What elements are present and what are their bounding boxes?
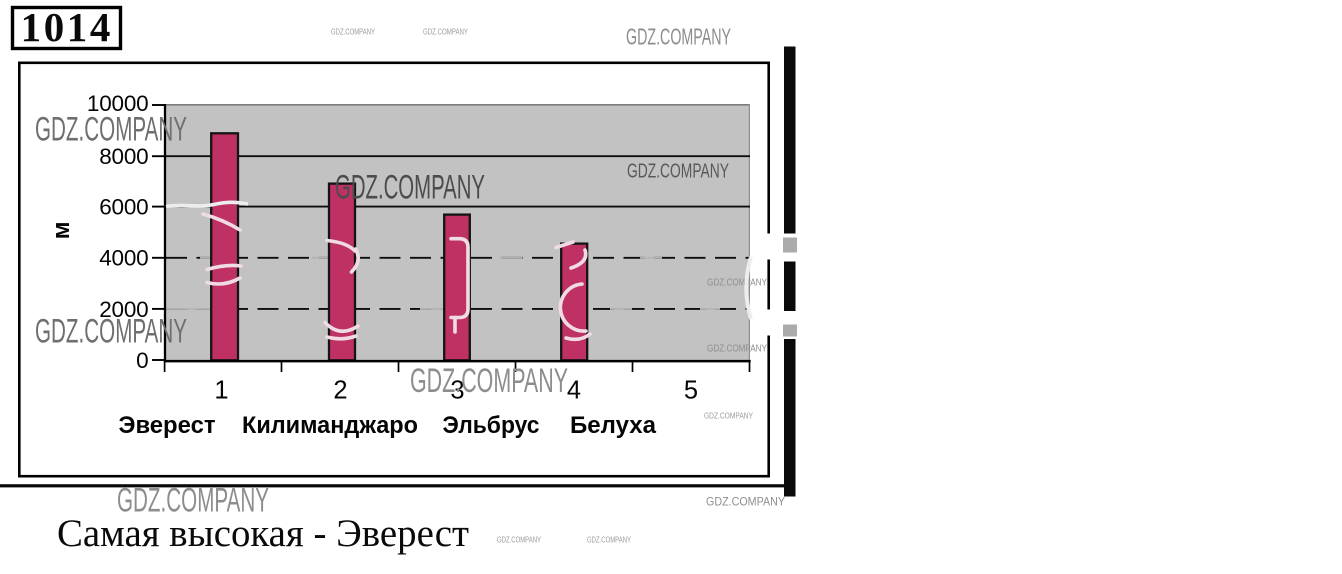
svg-text:GDZ.COMPANY: GDZ.COMPANY <box>410 362 568 400</box>
svg-text:GDZ.COMPANY: GDZ.COMPANY <box>35 313 187 351</box>
svg-text:GDZ.COMPANY: GDZ.COMPANY <box>627 161 729 183</box>
svg-text:0: 0 <box>136 348 148 373</box>
svg-text:GDZ.COMPANY: GDZ.COMPANY <box>587 535 631 545</box>
svg-text:GDZ.COMPANY: GDZ.COMPANY <box>423 27 468 37</box>
svg-text:Самая высокая - Эверест: Самая высокая - Эверест <box>57 512 469 555</box>
svg-text:1: 1 <box>214 377 228 405</box>
svg-text:Эльбрус: Эльбрус <box>443 412 540 439</box>
svg-text:GDZ.COMPANY: GDZ.COMPANY <box>707 278 767 289</box>
svg-text:м: м <box>48 221 75 239</box>
svg-text:4: 4 <box>567 377 581 405</box>
svg-text:Килиманджаро: Килиманджаро <box>242 412 418 439</box>
svg-text:GDZ.COMPANY: GDZ.COMPANY <box>706 497 785 509</box>
svg-text:GDZ.COMPANY: GDZ.COMPANY <box>497 535 541 545</box>
svg-text:2: 2 <box>333 377 347 405</box>
svg-text:Белуха: Белуха <box>570 412 657 439</box>
svg-text:GDZ.COMPANY: GDZ.COMPANY <box>707 344 767 355</box>
svg-text:GDZ.COMPANY: GDZ.COMPANY <box>704 411 753 421</box>
svg-text:4000: 4000 <box>99 246 148 271</box>
svg-text:5: 5 <box>684 377 698 405</box>
svg-text:GDZ.COMPANY: GDZ.COMPANY <box>626 24 731 50</box>
svg-text:GDZ.COMPANY: GDZ.COMPANY <box>335 169 485 207</box>
svg-text:Эверест: Эверест <box>119 412 216 439</box>
svg-text:GDZ.COMPANY: GDZ.COMPANY <box>331 27 375 37</box>
svg-text:6000: 6000 <box>99 195 148 220</box>
svg-text:GDZ.COMPANY: GDZ.COMPANY <box>35 111 187 149</box>
svg-text:1014: 1014 <box>21 4 113 50</box>
